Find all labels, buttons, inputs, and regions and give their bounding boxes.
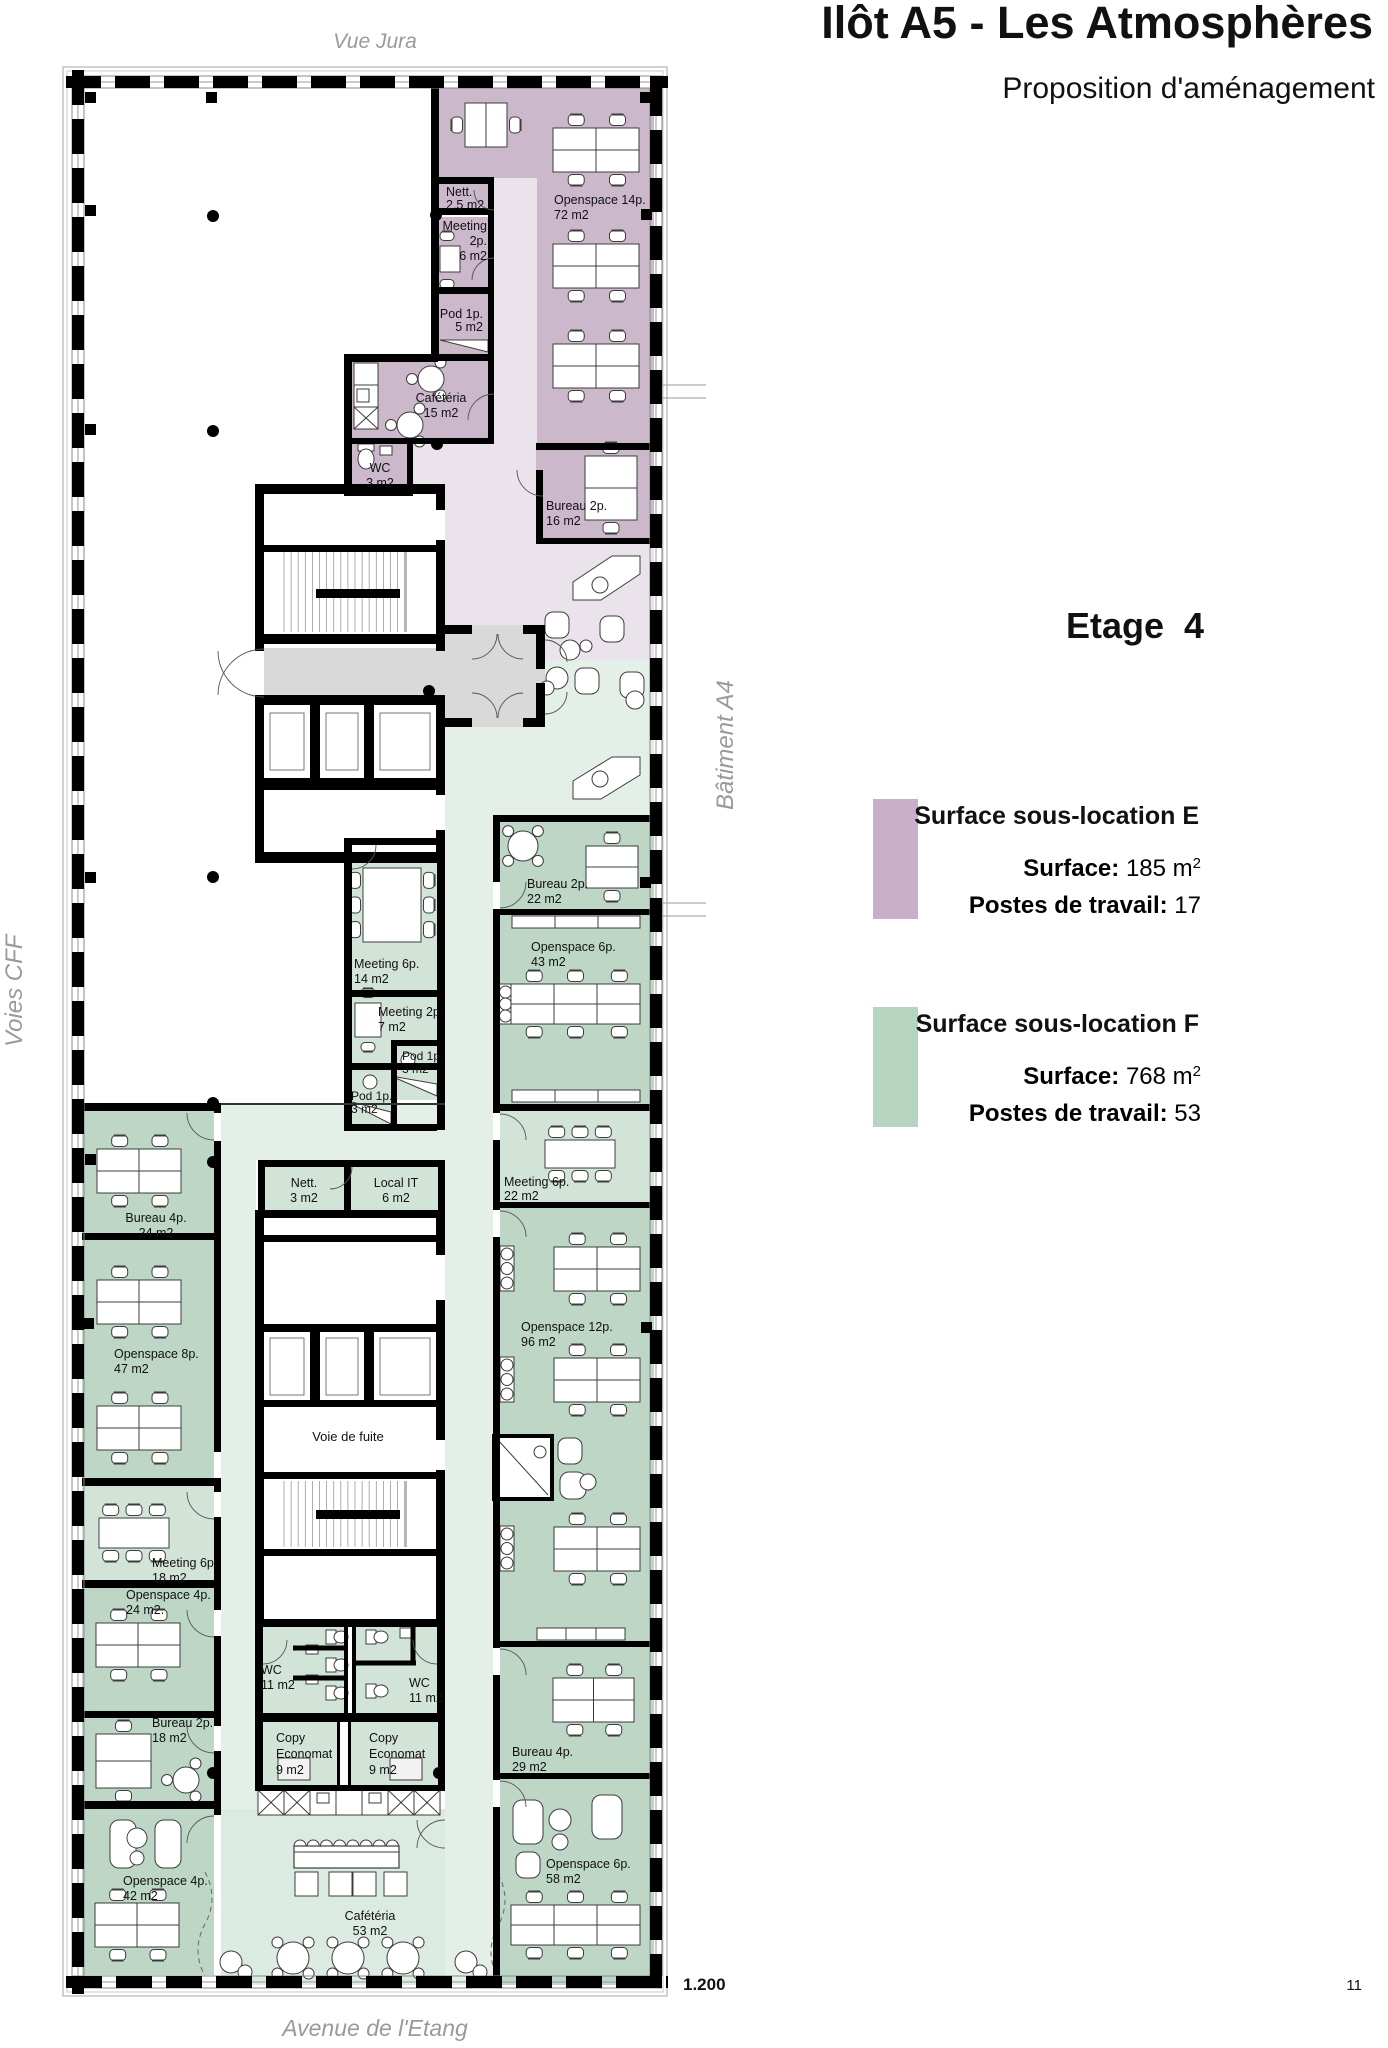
svg-text:WC: WC [370,461,391,475]
svg-text:11 m2: 11 m2 [261,1678,295,1692]
svg-text:29 m2: 29 m2 [512,1760,547,1774]
svg-text:Cafétéria: Cafétéria [345,1909,396,1923]
svg-text:2,5 m2: 2,5 m2 [446,198,484,212]
svg-text:Ilôt A5 - Les Atmosphères: Ilôt A5 - Les Atmosphères [821,0,1373,48]
svg-text:15 m2: 15 m2 [424,406,459,420]
svg-text:Nett.: Nett. [446,185,472,199]
svg-text:Nett.: Nett. [291,1176,317,1190]
svg-text:96 m2: 96 m2 [521,1335,556,1349]
svg-text:5 m2: 5 m2 [455,320,483,334]
svg-text:1.200: 1.200 [683,1975,726,1994]
svg-text:Cafétéria: Cafétéria [416,391,467,405]
svg-text:Voies CFF: Voies CFF [1,933,28,1047]
svg-text:9 m2: 9 m2 [369,1763,397,1777]
svg-text:72 m2: 72 m2 [554,208,589,222]
svg-text:Bureau 2p.: Bureau 2p. [546,499,607,513]
svg-text:Bureau 2p.: Bureau 2p. [152,1716,213,1730]
svg-text:47 m2: 47 m2 [114,1362,149,1376]
svg-text:Copy: Copy [276,1731,306,1745]
svg-text:3 m2: 3 m2 [402,1062,429,1076]
svg-text:14 m2: 14 m2 [354,972,389,986]
svg-text:24 m2: 24 m2 [139,1226,174,1240]
svg-text:WC: WC [409,1676,430,1690]
svg-text:Meeting: Meeting [443,219,488,233]
svg-text:Openspace 6p.: Openspace 6p. [531,940,616,954]
svg-text:22 m2: 22 m2 [504,1189,539,1203]
svg-text:Pod 1p.: Pod 1p. [402,1049,443,1063]
svg-text:24 m2.: 24 m2. [126,1603,164,1617]
svg-text:Copy: Copy [369,1731,399,1745]
svg-text:Openspace 4p.: Openspace 4p. [123,1874,208,1888]
svg-text:Openspace 12p.: Openspace 12p. [521,1320,613,1334]
svg-text:Bureau 4p.: Bureau 4p. [125,1211,186,1225]
svg-text:22 m2: 22 m2 [527,892,562,906]
svg-text:3 m2: 3 m2 [366,476,394,490]
svg-text:6 m2: 6 m2 [382,1191,410,1205]
svg-text:Bureau 4p.: Bureau 4p. [512,1745,573,1759]
svg-text:Surface: 185 m2: Surface: 185 m2 [1023,855,1201,882]
svg-text:Meeting 2p.: Meeting 2p. [378,1005,443,1019]
svg-text:Meeting 6p.: Meeting 6p. [354,957,419,971]
svg-text:16 m2: 16 m2 [546,514,581,528]
svg-text:Bâtiment A4: Bâtiment A4 [712,680,739,810]
svg-text:18 m2: 18 m2 [152,1731,187,1745]
svg-text:11: 11 [1346,1977,1362,1994]
svg-text:Openspace 4p.: Openspace 4p. [126,1588,211,1602]
svg-text:2p.: 2p. [470,234,487,248]
svg-text:11 m2: 11 m2 [409,1691,443,1705]
svg-text:Meeting 6p.: Meeting 6p. [504,1175,569,1189]
svg-text:Local IT: Local IT [374,1176,419,1190]
svg-text:3 m2: 3 m2 [351,1102,378,1116]
svg-text:Avenue de l'Etang: Avenue de l'Etang [280,2015,468,2041]
svg-text:Etage 4: Etage 4 [1066,605,1204,646]
svg-text:Pod 1p.: Pod 1p. [351,1089,392,1103]
svg-text:Voie de fuite: Voie de fuite [312,1429,384,1444]
svg-text:53 m2: 53 m2 [353,1924,388,1938]
svg-text:Meeting 6p.: Meeting 6p. [152,1556,217,1570]
svg-text:43 m2: 43 m2 [531,955,566,969]
svg-text:Surface sous-location E: Surface sous-location E [914,802,1199,830]
svg-text:42 m2: 42 m2 [123,1889,158,1903]
svg-text:Economat: Economat [369,1747,426,1761]
svg-text:58 m2: 58 m2 [546,1872,581,1886]
svg-text:Vue Jura: Vue Jura [333,30,417,53]
svg-text:Surface: 768 m2: Surface: 768 m2 [1023,1063,1201,1090]
svg-text:Openspace 8p.: Openspace 8p. [114,1347,199,1361]
svg-text:Postes de travail: 17: Postes de travail: 17 [969,892,1201,919]
svg-text:Proposition d'aménagement: Proposition d'aménagement [1002,72,1375,105]
svg-text:6 m2: 6 m2 [459,249,487,263]
svg-text:Surface sous-location F: Surface sous-location F [916,1010,1199,1038]
svg-text:3 m2: 3 m2 [290,1191,318,1205]
svg-text:Pod 1p.: Pod 1p. [440,307,483,321]
svg-text:Openspace 14p.: Openspace 14p. [554,193,646,207]
svg-text:Openspace 6p.: Openspace 6p. [546,1857,631,1871]
svg-text:Bureau 2p.: Bureau 2p. [527,877,588,891]
svg-text:18 m2: 18 m2 [152,1571,187,1585]
svg-text:7 m2: 7 m2 [378,1020,406,1034]
svg-text:WC: WC [261,1663,282,1677]
svg-text:9 m2: 9 m2 [276,1763,304,1777]
svg-text:Economat: Economat [276,1747,333,1761]
svg-text:Postes de travail: 53: Postes de travail: 53 [969,1100,1201,1127]
